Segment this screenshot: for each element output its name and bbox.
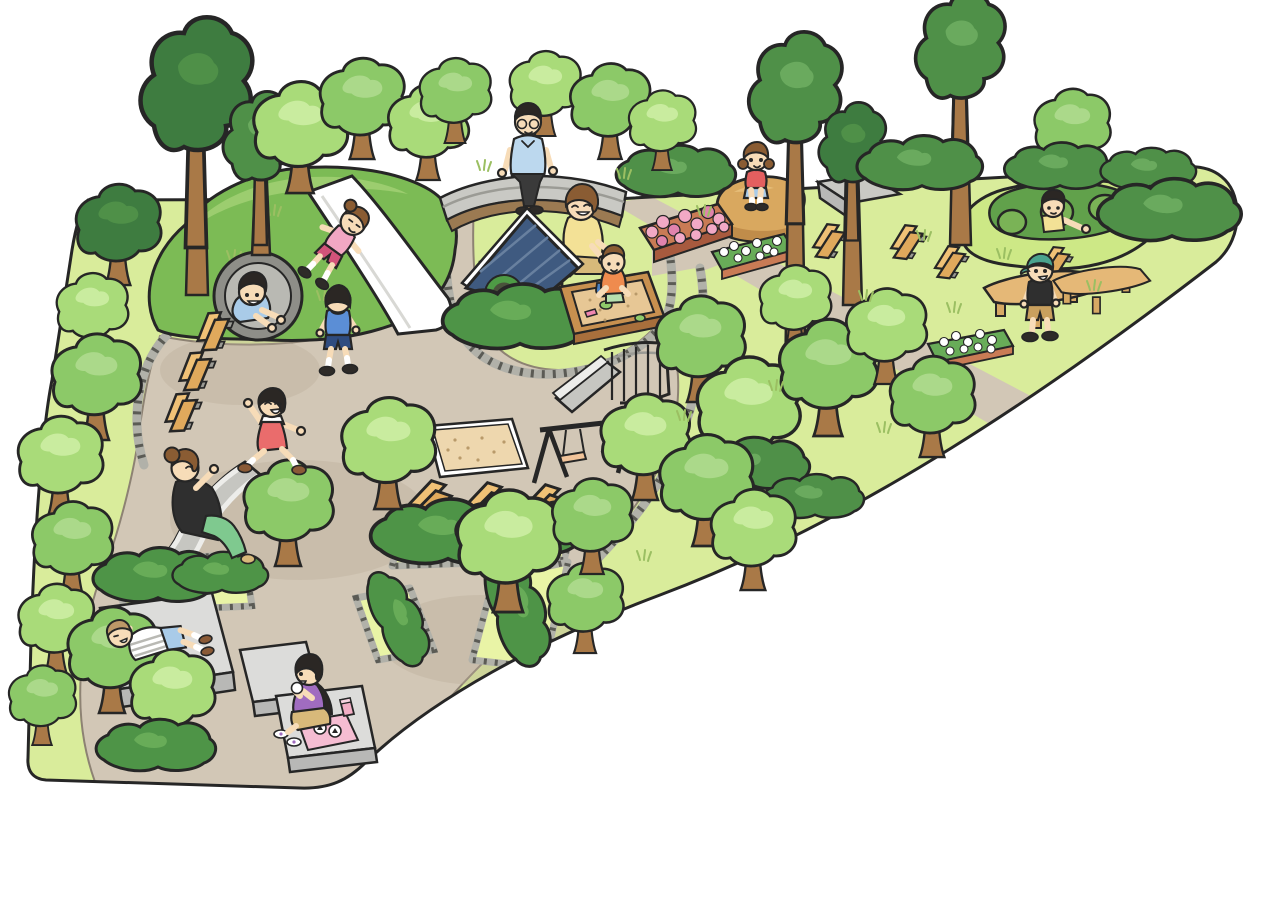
hair-bun <box>165 448 180 463</box>
tree <box>548 563 624 653</box>
park-illustration <box>0 0 1280 905</box>
hedge-row <box>1004 143 1112 189</box>
sand-pit <box>427 419 528 477</box>
person-toddler-in-sandbox <box>599 245 628 303</box>
hedge-row <box>616 145 736 197</box>
park-illustration-stage <box>0 0 1280 905</box>
bush <box>96 719 216 771</box>
rice-ball-held <box>292 683 303 694</box>
hedge-row <box>1098 179 1241 241</box>
toy-green <box>635 315 645 322</box>
hedge-row <box>857 136 983 190</box>
dome-hole <box>998 210 1026 234</box>
tree <box>711 489 796 590</box>
